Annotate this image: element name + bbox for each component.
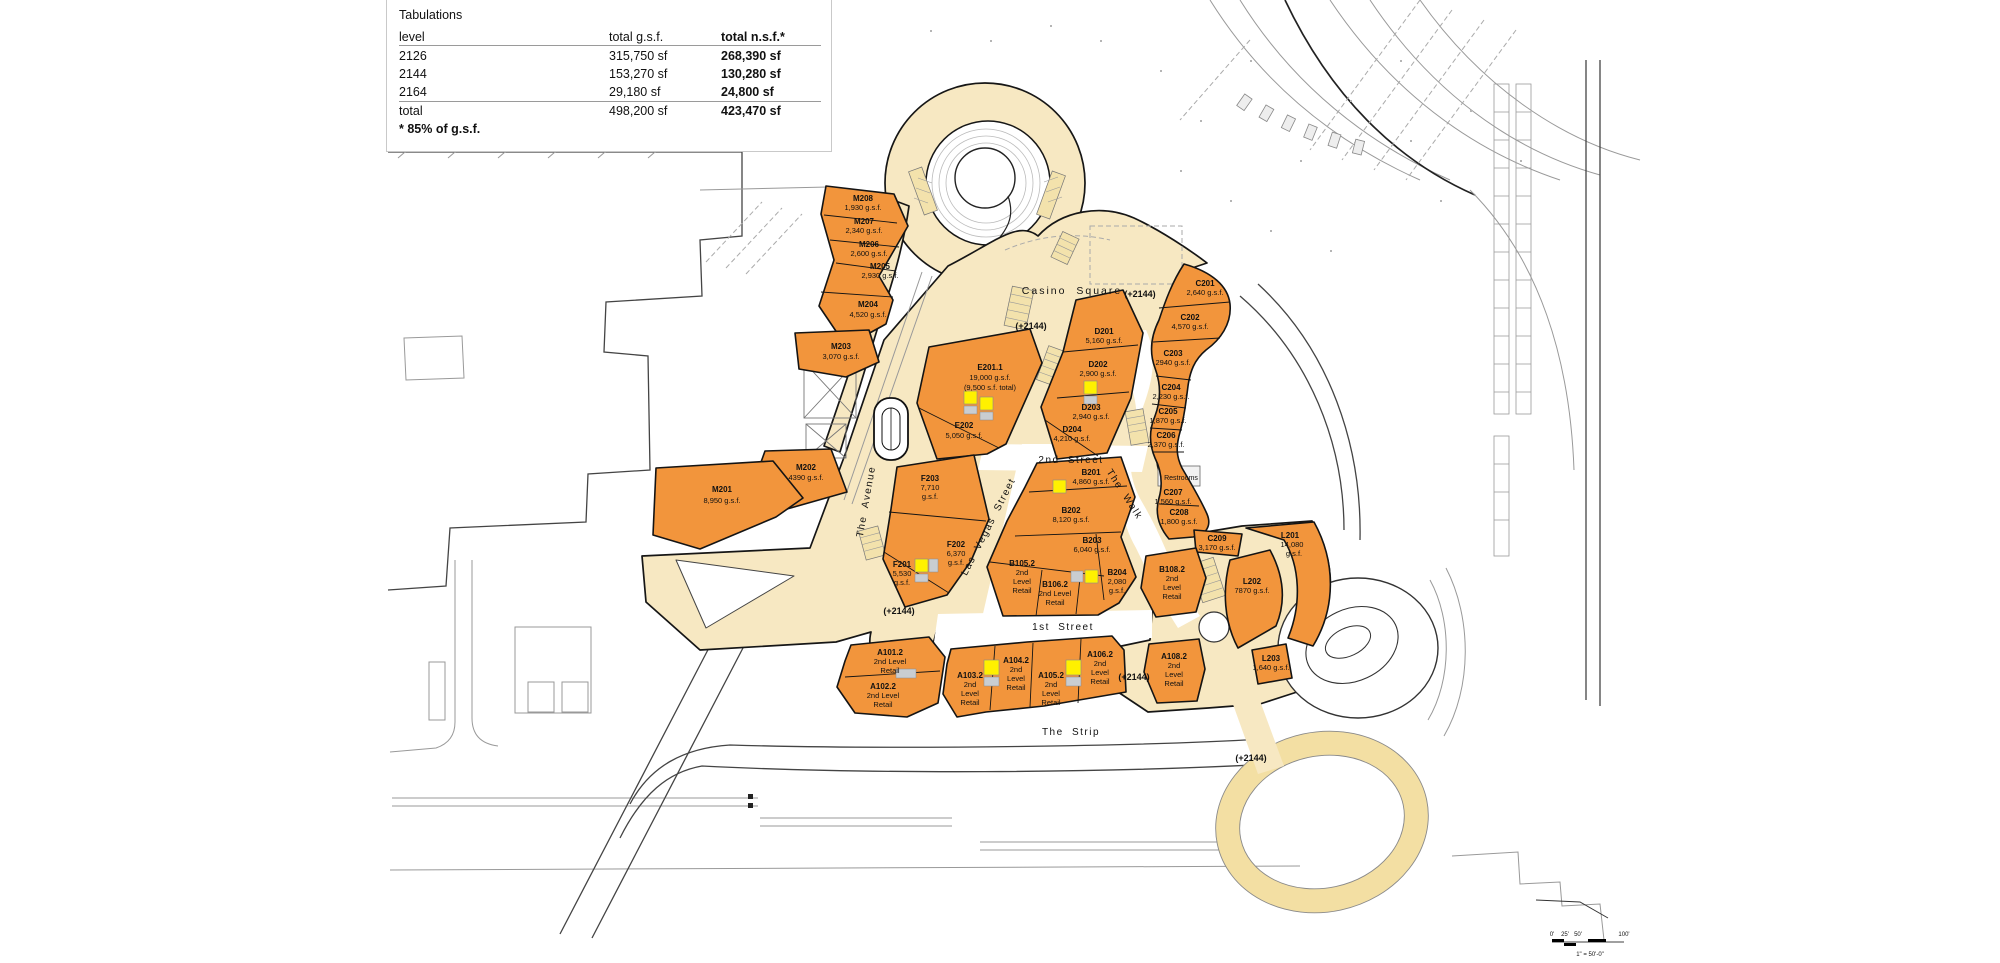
- arc-5: [1420, 0, 1640, 160]
- level-marker: (+2144): [1118, 672, 1149, 682]
- stair-icon: [964, 406, 977, 414]
- rail-left: [392, 798, 758, 806]
- building-area: Level: [1163, 583, 1181, 592]
- building-area: 3,070 g.s.f.: [822, 352, 859, 361]
- building-area: Level: [1013, 577, 1031, 586]
- building-area: Retail: [1012, 586, 1032, 595]
- building-area: 2nd: [1166, 574, 1179, 583]
- road-bottom: [390, 866, 1300, 870]
- building-area: g.s.f.: [1286, 549, 1302, 558]
- building-code: B108.2: [1159, 565, 1185, 574]
- building-area: g.s.f.: [894, 578, 910, 587]
- building-code: B204: [1107, 568, 1127, 577]
- table-cell: 2126: [399, 47, 609, 64]
- building-code: B106.2: [1042, 580, 1068, 589]
- site-plan-drawing: M208 1,930 g.s.f. M207 2,340 g.s.f. M206…: [0, 0, 2000, 963]
- building-area: Retail: [1090, 677, 1110, 686]
- edge-line: [700, 187, 828, 190]
- building-area: 2,370 g.s.f.: [1147, 440, 1184, 449]
- building-code: B201: [1081, 468, 1101, 477]
- building-code: C209: [1207, 534, 1227, 543]
- building-code: C204: [1161, 383, 1181, 392]
- building-area: 4390 g.s.f.: [788, 473, 823, 482]
- building-code: D201: [1094, 327, 1114, 336]
- building-area: Retail: [1162, 592, 1182, 601]
- scale-note: 1" = 50'-0": [1576, 952, 1604, 958]
- elevator-icon: [964, 391, 977, 404]
- building-area: 1,800 g.s.f.: [1160, 517, 1197, 526]
- first-street-label: 1st Street: [1032, 622, 1094, 633]
- building-code: C207: [1163, 488, 1183, 497]
- building-area: Level: [1091, 668, 1109, 677]
- level-marker: (+2144): [1124, 289, 1155, 299]
- table-cell: 29,180 sf: [609, 83, 721, 100]
- elevator-icon: [1066, 660, 1081, 675]
- road-left-2: [472, 560, 498, 746]
- elevator-icon: [984, 660, 999, 675]
- building-area: 4,210 g.s.f.: [1053, 434, 1090, 443]
- table-total-cell: 498,200 sf: [609, 101, 721, 119]
- building-area: 2nd: [964, 680, 977, 689]
- the-strip-label: The Strip: [1042, 727, 1100, 738]
- site-plan-stage: M208 1,930 g.s.f. M207 2,340 g.s.f. M206…: [0, 0, 2000, 963]
- building-area: 4,860 g.s.f.: [1072, 477, 1109, 486]
- tabulations-table: level total g.s.f. total n.s.f.* 2126 31…: [399, 28, 819, 119]
- col-header-level: level: [399, 28, 609, 46]
- stair-icon: [929, 559, 938, 572]
- building-area: 8,950 g.s.f.: [703, 496, 740, 505]
- second-street-label: 2nd Street: [1038, 455, 1103, 466]
- table-total-cell: total: [399, 101, 609, 119]
- building-area: 14,080: [1281, 540, 1304, 549]
- building-area: 4,570 g.s.f.: [1171, 322, 1208, 331]
- building-area: 2nd Level: [867, 691, 900, 700]
- bottom-ring: [1199, 712, 1446, 933]
- building-area: 2,900 g.s.f.: [1079, 369, 1116, 378]
- tabulations-panel: Tabulations level total g.s.f. total n.s…: [386, 0, 832, 152]
- building-area: 2,340 g.s.f.: [845, 226, 882, 235]
- building-code: F203: [921, 474, 940, 483]
- building-code: E201.1: [977, 363, 1003, 372]
- building-area: 2,230 g.s.f.: [1152, 392, 1189, 401]
- building-area: 2,080: [1108, 577, 1127, 586]
- building-area: 8,120 g.s.f.: [1052, 515, 1089, 524]
- stair-icon: [980, 412, 993, 420]
- tabulations-footnote: * 85% of g.s.f.: [399, 122, 819, 136]
- building-code: M202: [796, 463, 817, 472]
- building-code: M201: [712, 485, 733, 494]
- building-code: M203: [831, 342, 852, 351]
- level-marker: (+2144): [1235, 753, 1266, 763]
- building-area: g.s.f.: [922, 492, 938, 501]
- building-code: M205: [870, 262, 891, 271]
- building-area: 6,370: [947, 549, 966, 558]
- building-area: 2nd: [1010, 665, 1023, 674]
- col-header-gsf: total g.s.f.: [609, 28, 721, 46]
- elevator-icon: [1053, 480, 1066, 493]
- building-area: g.s.f.: [1109, 586, 1125, 595]
- right-road-1: [1240, 296, 1344, 530]
- rail-tick: [748, 794, 753, 799]
- building-code: M206: [859, 240, 880, 249]
- building-area: 2,600 g.s.f.: [850, 249, 887, 258]
- dashed-tracks: [1180, 0, 1516, 180]
- building-code: L202: [1243, 577, 1262, 586]
- building-area: Level: [1042, 689, 1060, 698]
- stair-icon: [984, 677, 999, 686]
- table-cell: 153,270 sf: [609, 65, 721, 82]
- level-marker: (+2144): [883, 606, 914, 616]
- building-area: 1,870 g.s.f.: [1149, 416, 1186, 425]
- building-code: B202: [1061, 506, 1081, 515]
- table-cell: 2144: [399, 65, 609, 82]
- arc-bold: [1285, 0, 1475, 195]
- building-code: L203: [1262, 654, 1281, 663]
- building-code: A103.2: [957, 671, 983, 680]
- rail-right: [980, 842, 1240, 850]
- building-code: C202: [1180, 313, 1200, 322]
- building-code: C205: [1158, 407, 1178, 416]
- building-code: A101.2: [877, 648, 903, 657]
- arc-1: [1210, 0, 1420, 180]
- building-code: A104.2: [1003, 656, 1029, 665]
- arc-2: [1240, 0, 1450, 180]
- building-area: 2nd Level: [874, 657, 907, 666]
- building-area: 2nd: [1045, 680, 1058, 689]
- building-code: A106.2: [1087, 650, 1113, 659]
- stair-icon: [915, 574, 928, 582]
- building-area: Level: [961, 689, 979, 698]
- elevator-icon: [980, 397, 993, 410]
- left-block-inner-1: [528, 682, 554, 712]
- right-road-2: [1258, 284, 1360, 540]
- building-code: M207: [854, 217, 875, 226]
- tabulations-title: Tabulations: [399, 8, 819, 22]
- building-code: A108.2: [1161, 652, 1187, 661]
- stair-icon: [1071, 571, 1083, 582]
- building-area: 6,040 g.s.f.: [1073, 545, 1110, 554]
- building-area: 2,940 g.s.f.: [1072, 412, 1109, 421]
- building-area: Level: [1007, 674, 1025, 683]
- table-total-cell: 423,470 sf: [721, 101, 821, 119]
- left-block-inner-2: [562, 682, 588, 712]
- building-area: Retail: [1006, 683, 1026, 692]
- building-area: 2nd: [1168, 661, 1181, 670]
- building-area: 1,560 g.s.f.: [1154, 497, 1191, 506]
- scale-tick: 0': [1550, 932, 1554, 938]
- building-code: M208: [853, 194, 874, 203]
- building-code: C208: [1169, 508, 1189, 517]
- building-area: Retail: [960, 698, 980, 707]
- north-reference-line: [1536, 900, 1608, 918]
- building-area: 2940 g.s.f.: [1155, 358, 1190, 367]
- scale-tick: 100': [1618, 932, 1629, 938]
- level-marker: (+2144): [1015, 321, 1046, 331]
- building-code: E202: [955, 421, 974, 430]
- building-code: A102.2: [870, 682, 896, 691]
- building-area: 19,000 g.s.f.: [969, 373, 1010, 382]
- building-code: D204: [1062, 425, 1082, 434]
- building-code: M204: [858, 300, 879, 309]
- table-cell: 24,800 sf: [721, 83, 821, 100]
- scale-tick: 25': [1561, 932, 1569, 938]
- oval-outer-arc-2: [1444, 568, 1465, 736]
- building-code: F202: [947, 540, 966, 549]
- building-area: 1,930 g.s.f.: [844, 203, 881, 212]
- building-m201: [653, 461, 803, 549]
- restrooms-label: Restrooms: [1164, 475, 1198, 482]
- rail-mid: [760, 818, 952, 826]
- left-slot: [429, 662, 445, 720]
- building-area: 2nd: [1016, 568, 1029, 577]
- bottom-right-outline: [1452, 852, 1604, 940]
- table-cell: 268,390 sf: [721, 47, 821, 64]
- building-code: A105.2: [1038, 671, 1064, 680]
- building-area: 5,160 g.s.f.: [1085, 336, 1122, 345]
- table-cell: 2164: [399, 83, 609, 100]
- building-area: Retail: [873, 700, 893, 709]
- elevator-icon: [1084, 381, 1097, 394]
- building-area: 2nd Level: [1039, 589, 1072, 598]
- arc-right: [1470, 190, 1574, 470]
- scale-bar: 0' 25' 50' 100' 1" = 50'-0": [1536, 900, 1630, 958]
- col-header-nsf: total n.s.f.*: [721, 28, 821, 46]
- building-code: C201: [1195, 279, 1215, 288]
- elevator-icon: [1085, 570, 1098, 583]
- scale-tick: 50': [1574, 932, 1582, 938]
- rail-tick: [748, 803, 753, 808]
- building-area: 4,520 g.s.f.: [849, 310, 886, 319]
- right-street-lines: [1586, 60, 1600, 706]
- building-code: B105.2: [1009, 559, 1035, 568]
- building-area: 5,530: [893, 569, 912, 578]
- building-note: (9,500 s.f. total): [964, 383, 1017, 392]
- building-area: 7870 g.s.f.: [1234, 586, 1269, 595]
- building-area: g.s.f.: [948, 558, 964, 567]
- building-area: 2,640 g.s.f.: [1186, 288, 1223, 297]
- building-area: 3,170 g.s.f.: [1198, 543, 1235, 552]
- elevator-icon: [915, 559, 928, 572]
- table-cell: 130,280 sf: [721, 65, 821, 82]
- building-area: Level: [1165, 670, 1183, 679]
- track-cars: [1237, 94, 1365, 155]
- building-area: 7,710: [921, 483, 940, 492]
- building-area: Retail: [1041, 698, 1061, 707]
- roundabout: [1199, 612, 1229, 642]
- building-area: 5,050 g.s.f.: [945, 431, 982, 440]
- building-code: L201: [1281, 531, 1300, 540]
- scale-segment: [1552, 939, 1564, 942]
- building-area: 2nd: [1094, 659, 1107, 668]
- building-code: F201: [893, 560, 912, 569]
- loop-inner: [926, 121, 1050, 245]
- building-area: 1,640 g.s.f.: [1252, 663, 1289, 672]
- scale-segment: [1564, 943, 1576, 946]
- left-block: [515, 627, 591, 713]
- building-code: C203: [1163, 349, 1183, 358]
- arc-3: [1330, 0, 1560, 180]
- left-detail: [404, 336, 464, 380]
- building-code: B203: [1082, 536, 1102, 545]
- building-code: D202: [1088, 360, 1108, 369]
- casino-square-label: Casino Square: [1022, 285, 1122, 297]
- building-area: Retail: [1045, 598, 1065, 607]
- building-code: D203: [1081, 403, 1101, 412]
- strip-road-lower: [620, 763, 1290, 838]
- table-cell: 315,750 sf: [609, 47, 721, 64]
- building-area: Retail: [880, 666, 900, 675]
- scale-segment: [1588, 939, 1606, 942]
- building-area: 2,930 g.s.f.: [861, 271, 898, 280]
- stair-icon: [1066, 677, 1081, 686]
- building-area: Retail: [1164, 679, 1184, 688]
- building-code: C206: [1156, 431, 1176, 440]
